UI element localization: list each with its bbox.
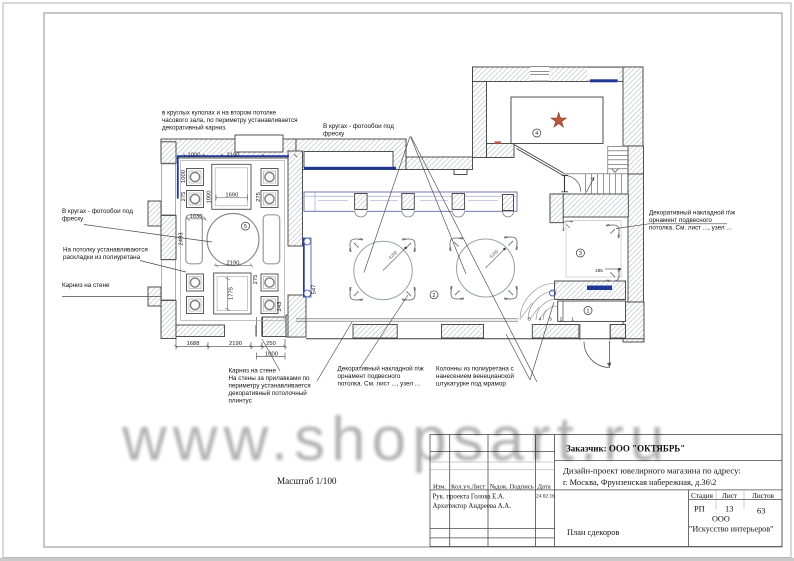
svg-text:в круглых куполах и на втором: в круглых куполах и на втором потолке [162, 110, 277, 117]
svg-text:185: 185 [595, 268, 603, 273]
svg-text:орнамент подвесного: орнамент подвесного [338, 373, 401, 380]
svg-text:"Искусство интерьеров": "Искусство интерьеров" [689, 525, 773, 534]
svg-text:потолка. См. лист ..., узел ..: потолка. См. лист ..., узел ... [649, 225, 732, 232]
svg-text:24.02.16: 24.02.16 [536, 494, 555, 500]
svg-text:547: 547 [312, 285, 318, 295]
svg-text:Стадия: Стадия [691, 492, 714, 500]
svg-text:1000: 1000 [206, 191, 212, 204]
svg-text:декоративный потолочный: декоративный потолочный [229, 389, 308, 397]
svg-text:2190: 2190 [227, 153, 240, 159]
svg-text:На стены за прилавками по: На стены за прилавками по [229, 375, 311, 382]
svg-text:фреску: фреску [62, 216, 84, 223]
svg-text:Лист: Лист [722, 492, 738, 500]
svg-text:1: 1 [587, 309, 590, 315]
svg-text:г. Москва, Фрунзенская набереж: г. Москва, Фрунзенская набережная, д.36\… [563, 478, 716, 487]
svg-text:275: 275 [253, 275, 259, 285]
svg-text:2: 2 [433, 293, 436, 299]
svg-text:РП: РП [694, 505, 705, 514]
svg-text:Декоративный накладной п\ж: Декоративный накладной п\ж [649, 209, 736, 217]
svg-text:В кругах - фотообои под: В кругах - фотообои под [62, 207, 133, 215]
svg-text:фреску: фреску [323, 131, 345, 138]
svg-text:раскладки из полиуретана: раскладки из полиуретана [63, 254, 141, 261]
svg-text:Колонны из полиуретана с: Колонны из полиуретана с [436, 366, 514, 373]
svg-text:Карниз на стене: Карниз на стене [229, 368, 277, 375]
svg-text:2493: 2493 [179, 233, 185, 246]
svg-text:часового зала, по периметру ус: часового зала, по периметру устанавливае… [162, 117, 298, 124]
svg-text:периметру устанавливается: периметру устанавливается [229, 383, 311, 390]
svg-text:нанесением венецианской: нанесением венецианской [436, 372, 515, 380]
svg-text:Листов: Листов [752, 492, 775, 500]
svg-text:Архитектор Андреева А.А.: Архитектор Андреева А.А. [433, 503, 512, 510]
svg-text:243: 243 [277, 302, 283, 312]
svg-text:1000: 1000 [188, 153, 201, 159]
svg-text:На потолку устанавливаются: На потолку устанавливаются [63, 247, 148, 254]
svg-text:Кол.уч.Лист: Кол.уч.Лист [451, 484, 485, 491]
svg-text:Рук. проекта Голова Е.А.: Рук. проекта Голова Е.А. [433, 494, 505, 501]
svg-text:3: 3 [549, 317, 552, 323]
svg-text:3: 3 [579, 251, 582, 257]
svg-text:№док. Подпись: №док. Подпись [490, 484, 534, 491]
svg-text:275: 275 [181, 192, 187, 202]
svg-text:декоративный карниз.: декоративный карниз. [162, 124, 227, 132]
svg-text:1775: 1775 [228, 287, 234, 300]
svg-text:2: 2 [560, 317, 563, 323]
svg-text:1690: 1690 [225, 192, 238, 198]
svg-text:штукатурке под мрамор: штукатурке под мрамор [436, 381, 506, 388]
svg-text:Масштаб 1/100: Масштаб 1/100 [277, 476, 337, 486]
svg-text:План сдекоров: План сдекоров [567, 528, 619, 537]
svg-text:4: 4 [539, 317, 542, 323]
svg-text:В кругах - фотообои под: В кругах - фотообои под [323, 122, 394, 130]
svg-text:ООО: ООО [712, 515, 730, 524]
svg-text:Карниз на стене: Карниз на стене [62, 282, 110, 289]
svg-text:Изм.: Изм. [433, 484, 446, 491]
svg-text:1: 1 [571, 317, 574, 323]
svg-text:4: 4 [535, 131, 538, 137]
svg-text:Дата: Дата [538, 484, 551, 491]
svg-text:5: 5 [244, 224, 247, 230]
svg-text:13: 13 [725, 505, 733, 514]
svg-text:орнамент подвесного: орнамент подвесного [649, 217, 712, 224]
svg-text:Декоративный накладной п\ж: Декоративный накладной п\ж [338, 365, 425, 373]
svg-text:63: 63 [757, 507, 765, 516]
svg-text:275: 275 [256, 192, 262, 202]
svg-text:5: 5 [528, 317, 531, 323]
svg-text:1000: 1000 [181, 170, 187, 183]
svg-text:потолка. См. лист ..., узел ..: потолка. См. лист ..., узел ... [338, 381, 421, 388]
